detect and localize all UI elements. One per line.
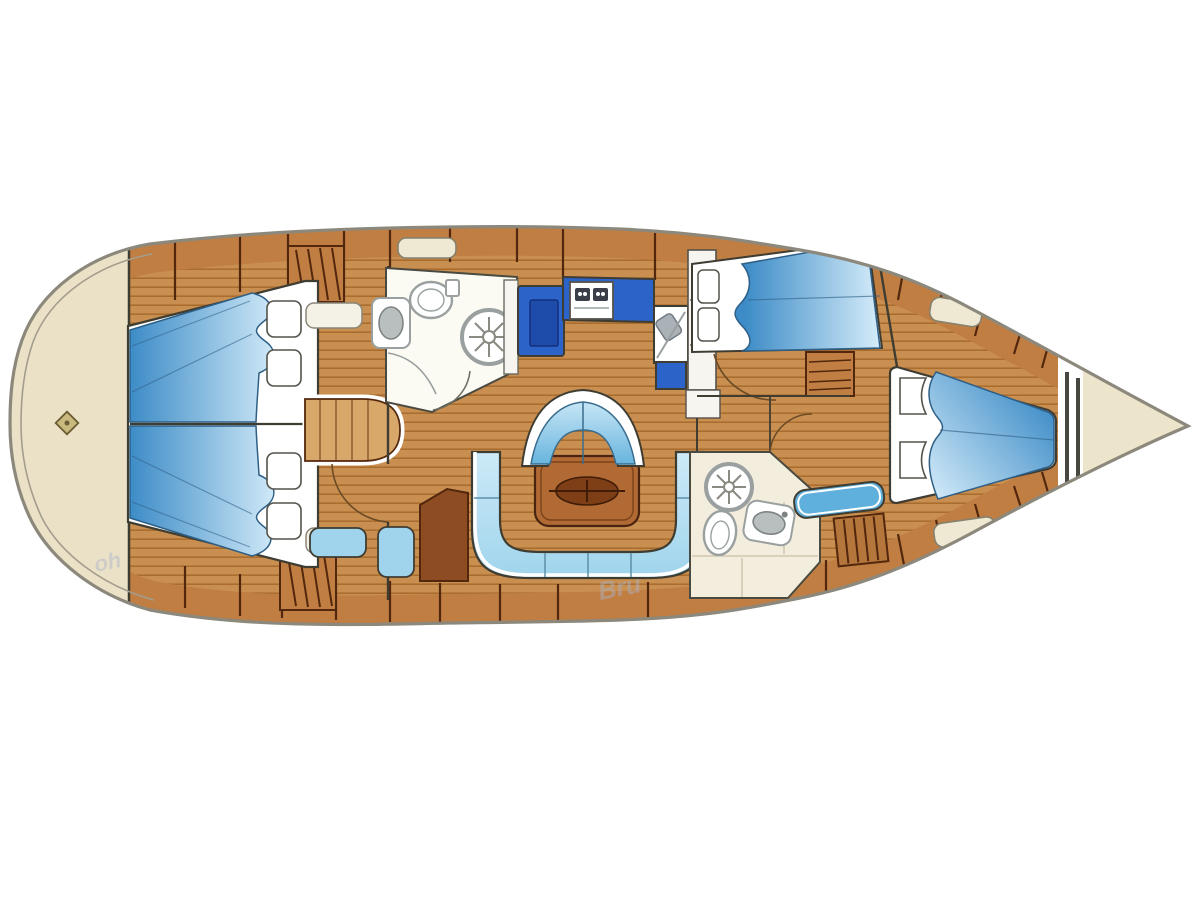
counter-under-sink	[656, 362, 686, 389]
wardrobe-louvered	[806, 352, 854, 396]
stove	[570, 282, 613, 319]
chart-table	[420, 489, 468, 581]
side-shelf-top	[306, 303, 362, 328]
nav-seat	[378, 527, 414, 577]
shower	[706, 464, 752, 510]
washbasin	[742, 499, 796, 547]
companion-doorway	[686, 390, 720, 418]
washbasin	[372, 298, 410, 348]
yacht-floorplan-canvas: oh Bru	[0, 0, 1201, 900]
cabin-seat-cushion	[310, 528, 366, 557]
bow-locker-right	[1083, 280, 1201, 580]
hull-interior: oh Bru	[0, 200, 1201, 670]
companionway-steps	[834, 513, 889, 566]
bow-gap	[1058, 260, 1084, 590]
floorplan-drawing: oh Bru	[0, 0, 1201, 900]
galley-sink	[654, 306, 688, 363]
head-galley-divider	[504, 280, 518, 374]
stern-locker-left	[0, 200, 130, 670]
counter-left-inner	[530, 300, 558, 346]
